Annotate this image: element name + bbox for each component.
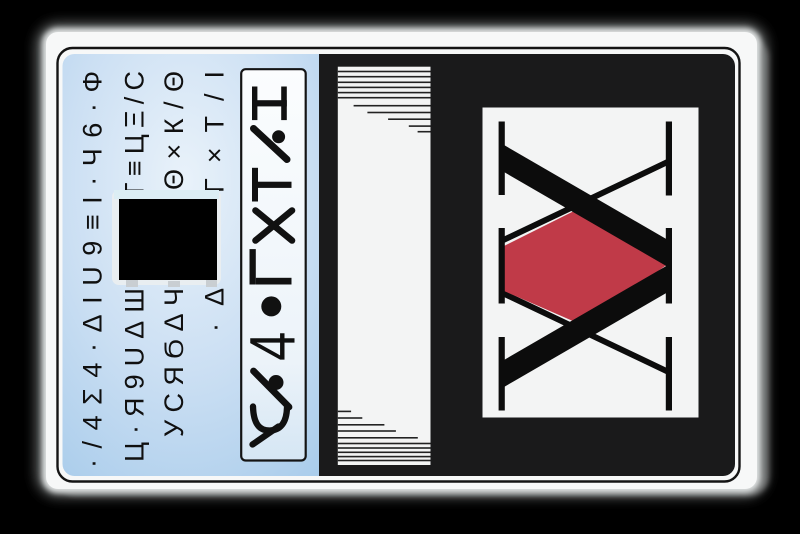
svg-text:4: 4 [238, 332, 309, 361]
svg-text:Θ×К/Θ: Θ×К/Θ [159, 71, 189, 190]
